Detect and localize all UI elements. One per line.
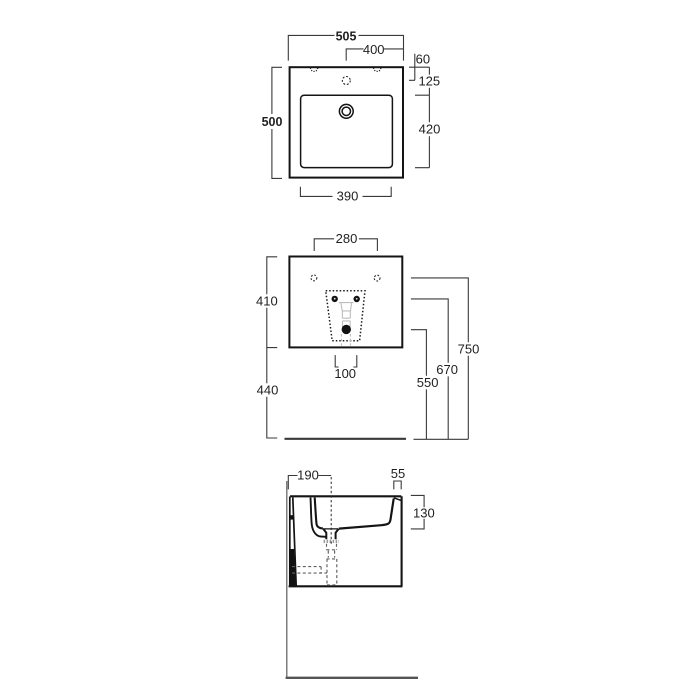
svg-text:130: 130: [413, 506, 435, 521]
svg-text:500: 500: [262, 115, 283, 129]
svg-text:125: 125: [418, 74, 440, 89]
svg-text:750: 750: [458, 342, 480, 357]
svg-text:390: 390: [337, 188, 359, 203]
svg-text:505: 505: [336, 29, 357, 43]
svg-text:280: 280: [336, 231, 358, 246]
svg-text:190: 190: [297, 467, 319, 482]
svg-text:55: 55: [391, 466, 405, 481]
svg-text:670: 670: [436, 362, 458, 377]
svg-text:60: 60: [416, 52, 430, 67]
svg-text:440: 440: [257, 383, 279, 398]
svg-text:100: 100: [334, 366, 356, 381]
svg-text:420: 420: [419, 122, 441, 137]
svg-text:410: 410: [256, 294, 278, 309]
svg-text:400: 400: [363, 42, 385, 57]
svg-text:550: 550: [417, 375, 439, 390]
